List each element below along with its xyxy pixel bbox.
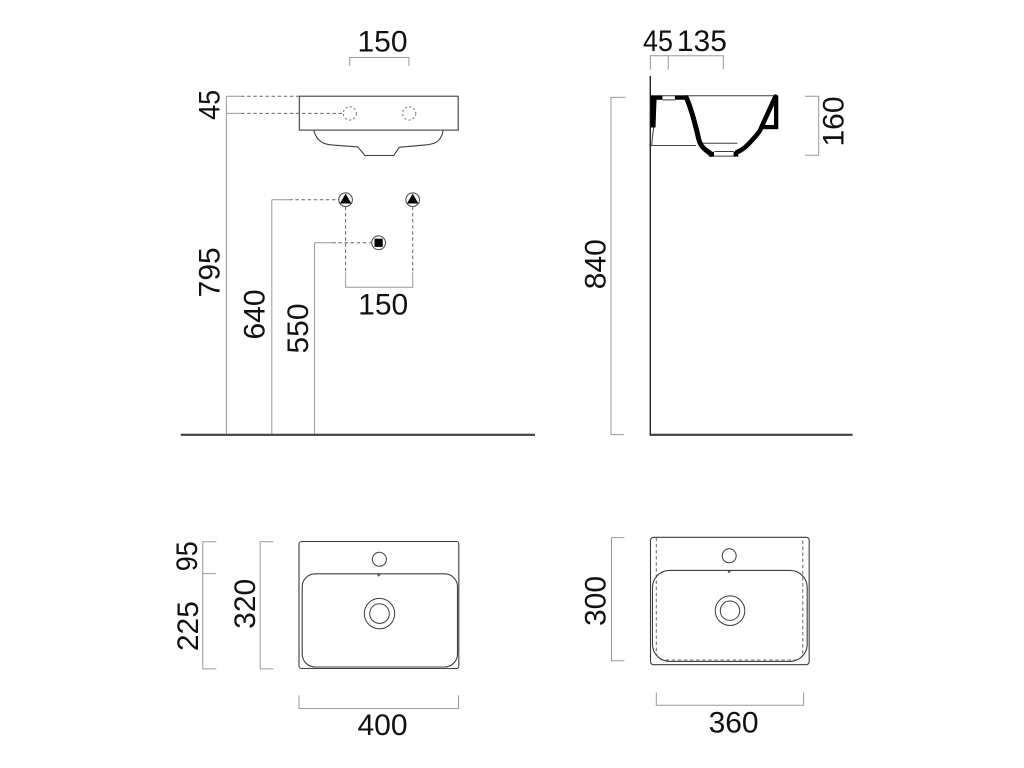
svg-text:300: 300 xyxy=(580,576,613,626)
svg-text:45: 45 xyxy=(194,90,227,120)
svg-text:550: 550 xyxy=(282,303,315,353)
svg-text:150: 150 xyxy=(357,25,407,58)
svg-text:95: 95 xyxy=(171,541,204,571)
svg-text:150: 150 xyxy=(358,289,408,322)
svg-text:45: 45 xyxy=(643,25,673,58)
svg-text:160: 160 xyxy=(818,96,851,146)
svg-text:225: 225 xyxy=(172,601,205,651)
svg-text:320: 320 xyxy=(229,579,262,629)
svg-text:400: 400 xyxy=(357,709,407,742)
svg-text:840: 840 xyxy=(580,239,613,289)
svg-text:640: 640 xyxy=(239,289,272,339)
svg-text:135: 135 xyxy=(677,25,727,58)
svg-text:795: 795 xyxy=(194,247,227,297)
svg-text:360: 360 xyxy=(709,706,759,739)
